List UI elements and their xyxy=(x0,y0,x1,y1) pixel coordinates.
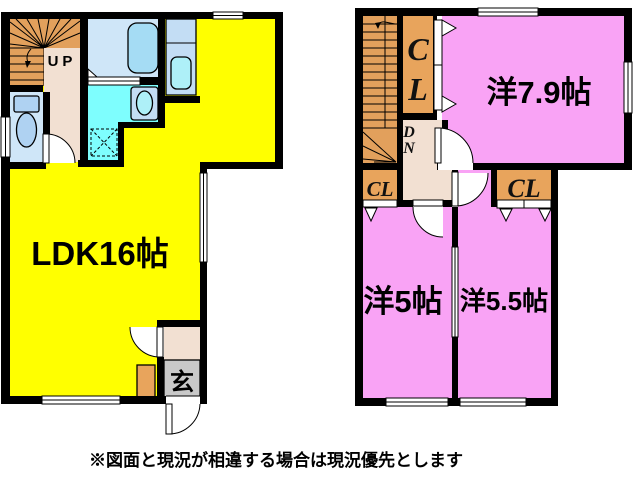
stairs-up-label: UP xyxy=(48,53,77,70)
floorplan-page: UP LDK16帖 玄 xyxy=(0,0,638,480)
closet-tall-label-top: C xyxy=(407,31,429,67)
room-5-5-label: 洋5.5帖 xyxy=(460,286,548,316)
kitchen-sink-icon xyxy=(171,57,191,89)
closet-left-label: CL xyxy=(367,177,394,201)
toilet-bowl-icon xyxy=(17,113,37,147)
closet-right-label: CL xyxy=(507,174,540,203)
disclaimer-note: ※図面と現況が相違する場合は現況優先とします xyxy=(89,450,463,470)
stairs-down-label-top: D xyxy=(402,124,415,141)
floorplan-svg: UP LDK16帖 玄 xyxy=(0,0,638,480)
genkan-label: 玄 xyxy=(170,368,194,396)
kitchen-counter xyxy=(166,19,196,95)
genkan-hall xyxy=(164,327,200,360)
washbasin-bowl-icon xyxy=(137,91,153,115)
stairs-down xyxy=(363,16,397,163)
closet-tall-label-bottom: L xyxy=(407,71,428,107)
room-ldk-label: LDK16帖 xyxy=(31,235,169,272)
shoe-cabinet xyxy=(137,365,155,397)
stairs-down-label-bottom: N xyxy=(402,140,416,157)
room-5-label: 洋5帖 xyxy=(363,284,442,319)
toilet-tank-icon xyxy=(14,96,39,112)
room-7-9-label: 洋7.9帖 xyxy=(486,75,591,110)
bathtub-icon xyxy=(128,23,158,73)
